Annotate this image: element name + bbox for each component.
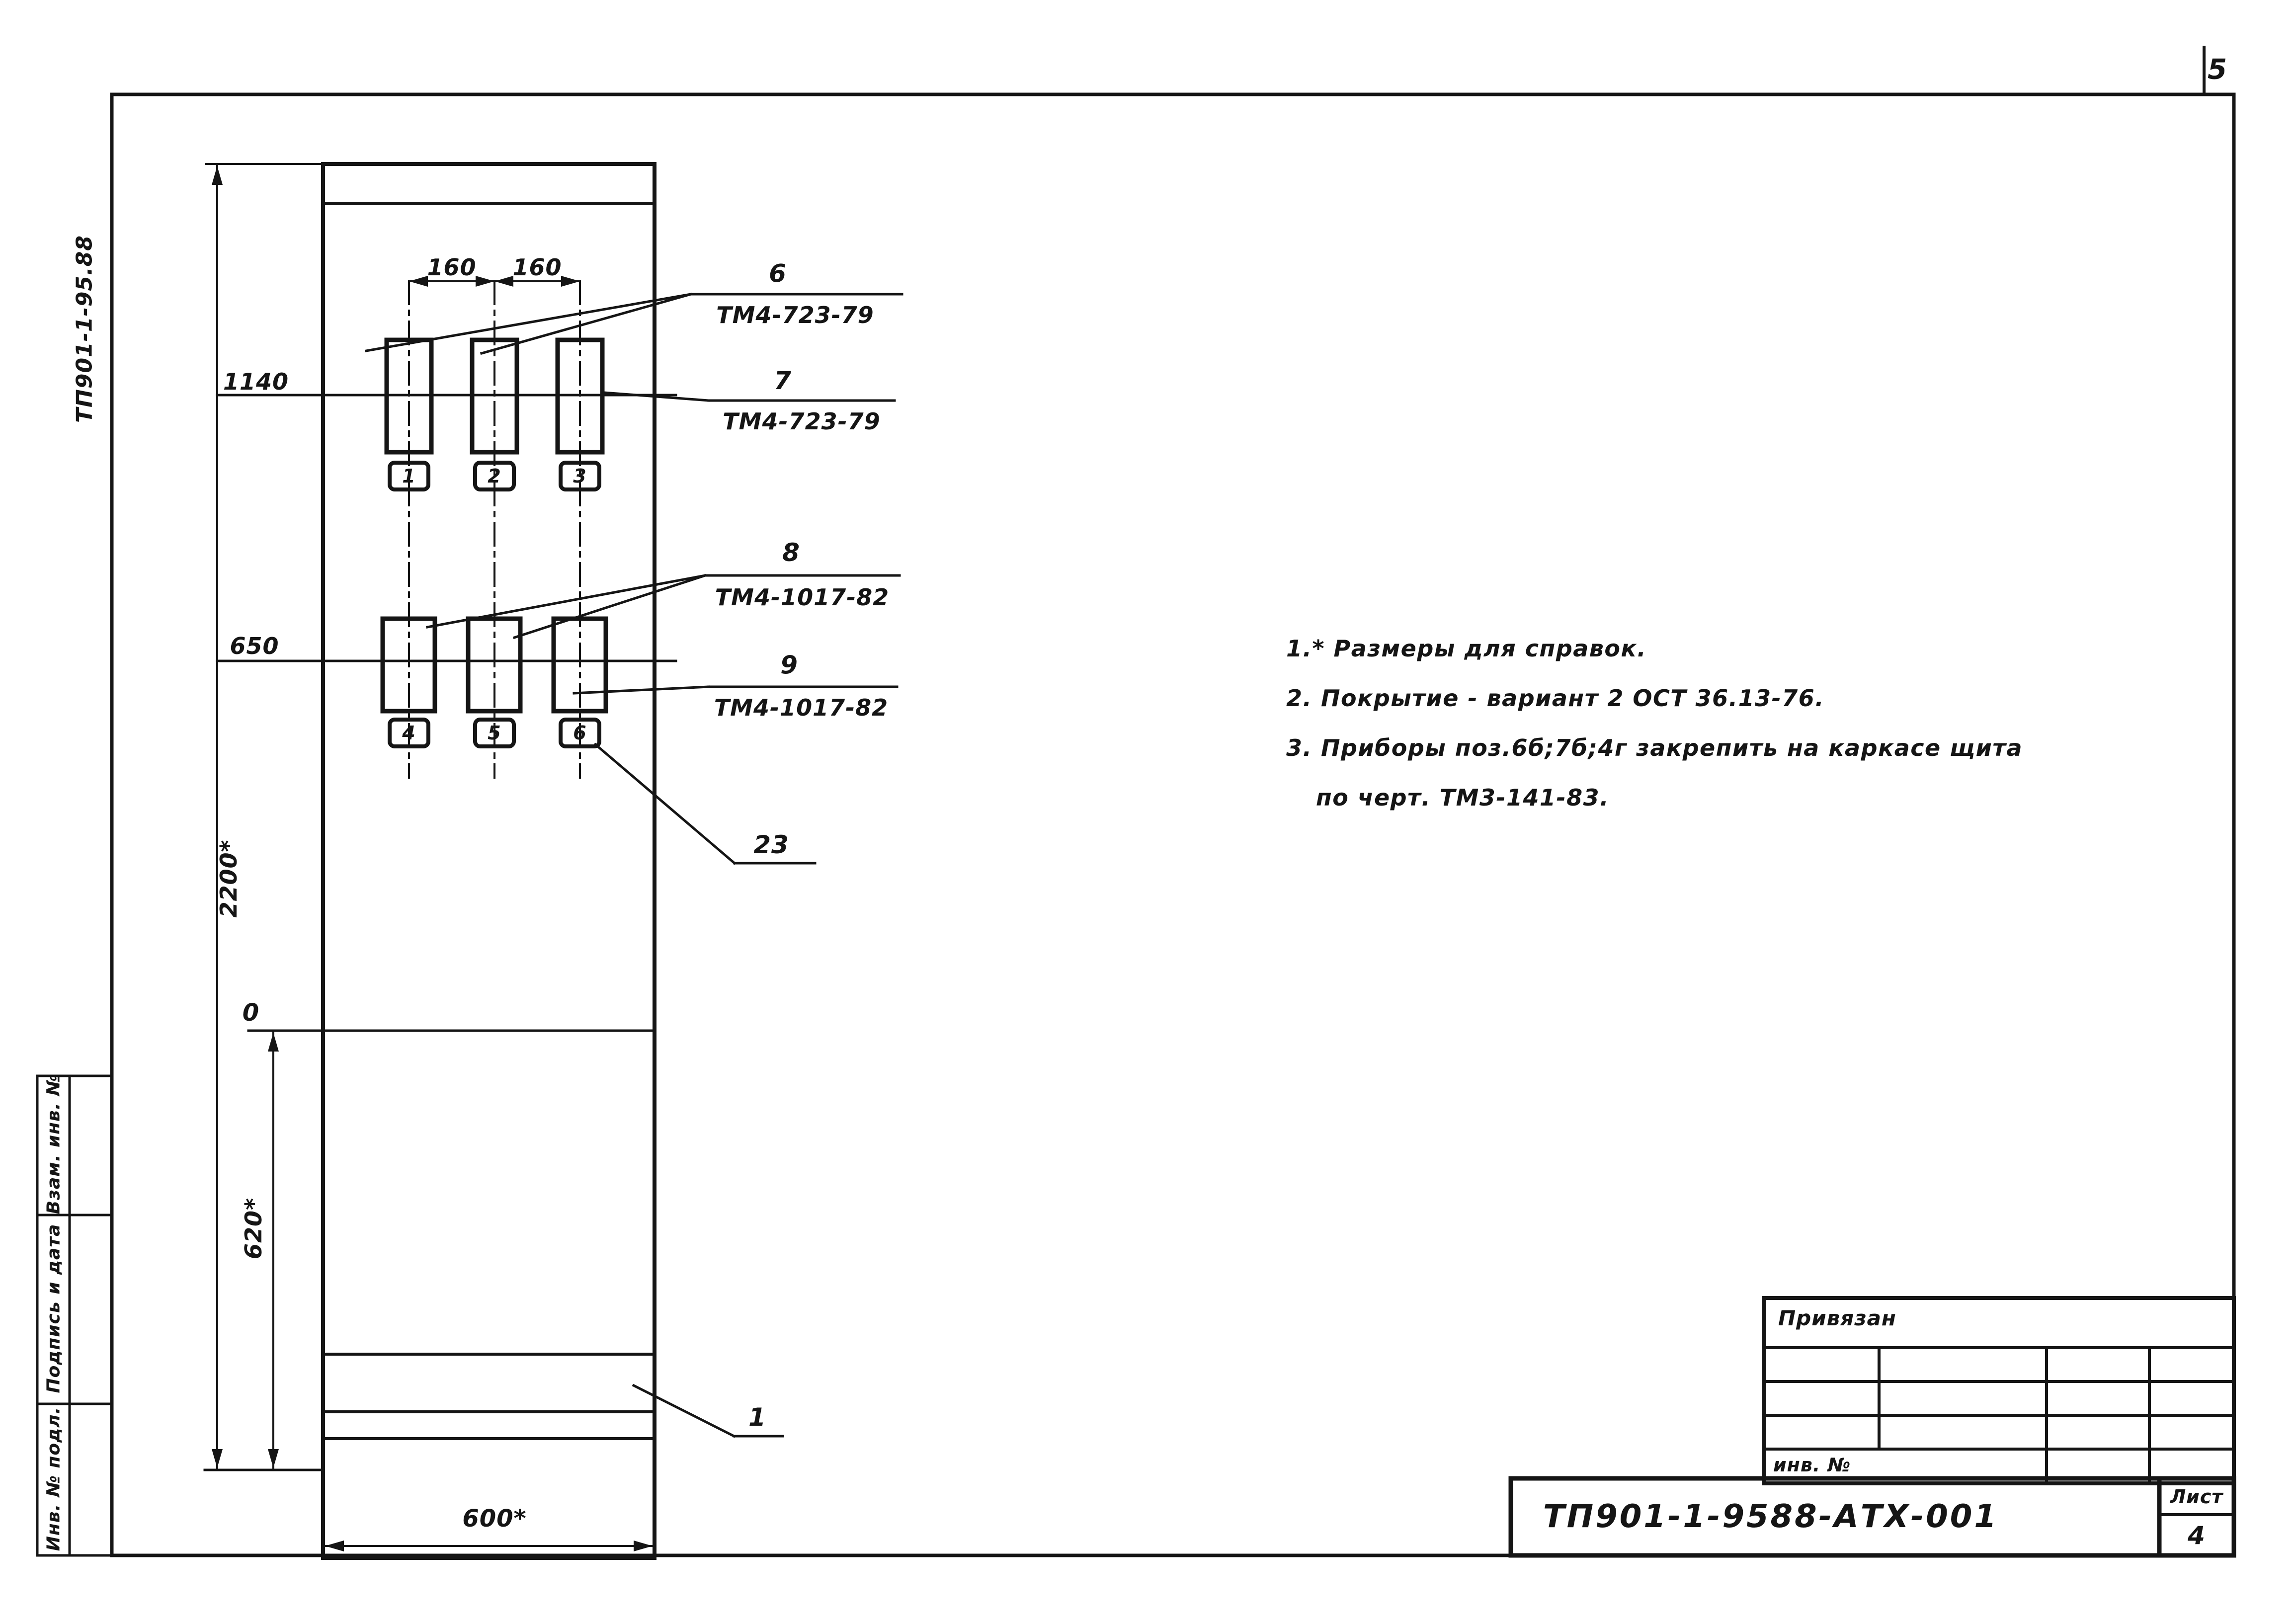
title-linked-label: Привязан <box>1778 1306 1896 1330</box>
callout-6-num: 6 <box>769 259 787 288</box>
dim-600: 600* <box>462 1505 526 1533</box>
panel-outline <box>323 164 655 1558</box>
callout-1-num: 1 <box>748 1403 766 1432</box>
tag-6: 6 <box>573 722 586 744</box>
callout-8-doc: ТМ4-1017-82 <box>715 584 889 611</box>
dim-160-left: 160 <box>427 254 476 281</box>
callout-8-num: 8 <box>782 538 800 567</box>
dim-650: 650 <box>230 633 279 659</box>
tag-3: 3 <box>573 465 586 487</box>
drawing-linework <box>0 0 2296 1623</box>
tag-4: 4 <box>402 722 415 744</box>
dim-620: 620* <box>240 1198 267 1259</box>
callout-9-doc: ТМ4-1017-82 <box>714 694 888 721</box>
stamp-sheet-number: 4 <box>2188 1521 2206 1550</box>
corner-sheet-number: 5 <box>2208 54 2227 86</box>
dim-2200: 2200* <box>215 839 242 917</box>
note-line-1: 1.* Размеры для справок. <box>1286 635 1646 662</box>
note-line-4: по черт. ТМ3-141-83. <box>1316 784 1609 811</box>
callout-9-num: 9 <box>780 650 798 679</box>
margin-doc-code: ТП901-1-95.88 <box>72 235 97 423</box>
note-line-2: 2. Покрытие - вариант 2 ОСТ 36.13-76. <box>1286 685 1824 712</box>
frame-border <box>112 94 2234 1555</box>
dim-1140: 1140 <box>223 368 289 395</box>
dim-160-right: 160 <box>512 254 562 281</box>
callout-7-num: 7 <box>774 366 792 395</box>
tag-1: 1 <box>402 465 415 487</box>
callout-leaders <box>366 294 902 1436</box>
note-line-3: 3. Приборы поз.6б;7б;4г закрепить на кар… <box>1286 734 2023 761</box>
dim-0: 0 <box>243 999 259 1027</box>
stamp-doc-number: ТП901-1-9588-АТХ-001 <box>1543 1498 1998 1535</box>
tag-5: 5 <box>488 722 501 744</box>
tag-2: 2 <box>488 465 501 487</box>
drawing-sheet: 5 ТП901-1-95.88 Взам. инв. № Подпись и д… <box>0 0 2296 1623</box>
callout-6-doc: ТМ4-723-79 <box>716 302 874 328</box>
title-inv-label: инв. № <box>1773 1454 1851 1476</box>
margin-stamp-label-podpis: Подпись и дата <box>44 1224 64 1393</box>
stamp-sheet-label: Лист <box>2170 1486 2223 1508</box>
margin-stamp-label-inv: Инв. № подл. <box>44 1407 64 1551</box>
callout-7-doc: ТМ4-723-79 <box>723 408 880 435</box>
margin-stamp-label-vzam: Взам. инв. № <box>44 1074 64 1215</box>
callout-23-num: 23 <box>753 830 789 859</box>
